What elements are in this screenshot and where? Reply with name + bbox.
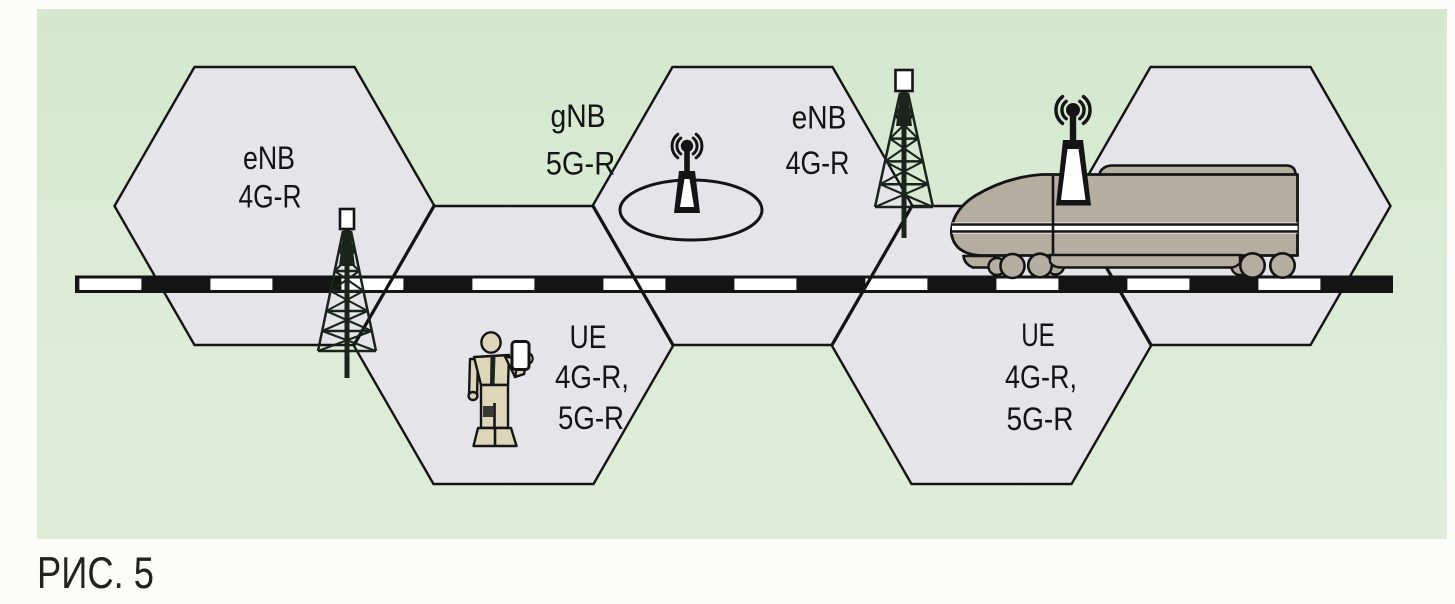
svg-text:5G-R: 5G-R (546, 146, 616, 182)
svg-text:4G-R: 4G-R (786, 145, 850, 181)
svg-text:eNB: eNB (243, 140, 295, 176)
svg-text:UE: UE (1021, 317, 1055, 353)
svg-text:eNB: eNB (792, 100, 847, 136)
svg-text:4G-R,: 4G-R, (1005, 359, 1077, 395)
svg-text:4G-R: 4G-R (239, 179, 302, 215)
svg-text:5G-R: 5G-R (558, 400, 624, 436)
svg-text:gNB: gNB (551, 98, 606, 134)
svg-text:UE: UE (570, 319, 607, 355)
svg-text:РИС. 5: РИС. 5 (37, 549, 154, 598)
svg-text:4G-R,: 4G-R, (555, 359, 629, 395)
svg-text:5G-R: 5G-R (1007, 401, 1074, 437)
